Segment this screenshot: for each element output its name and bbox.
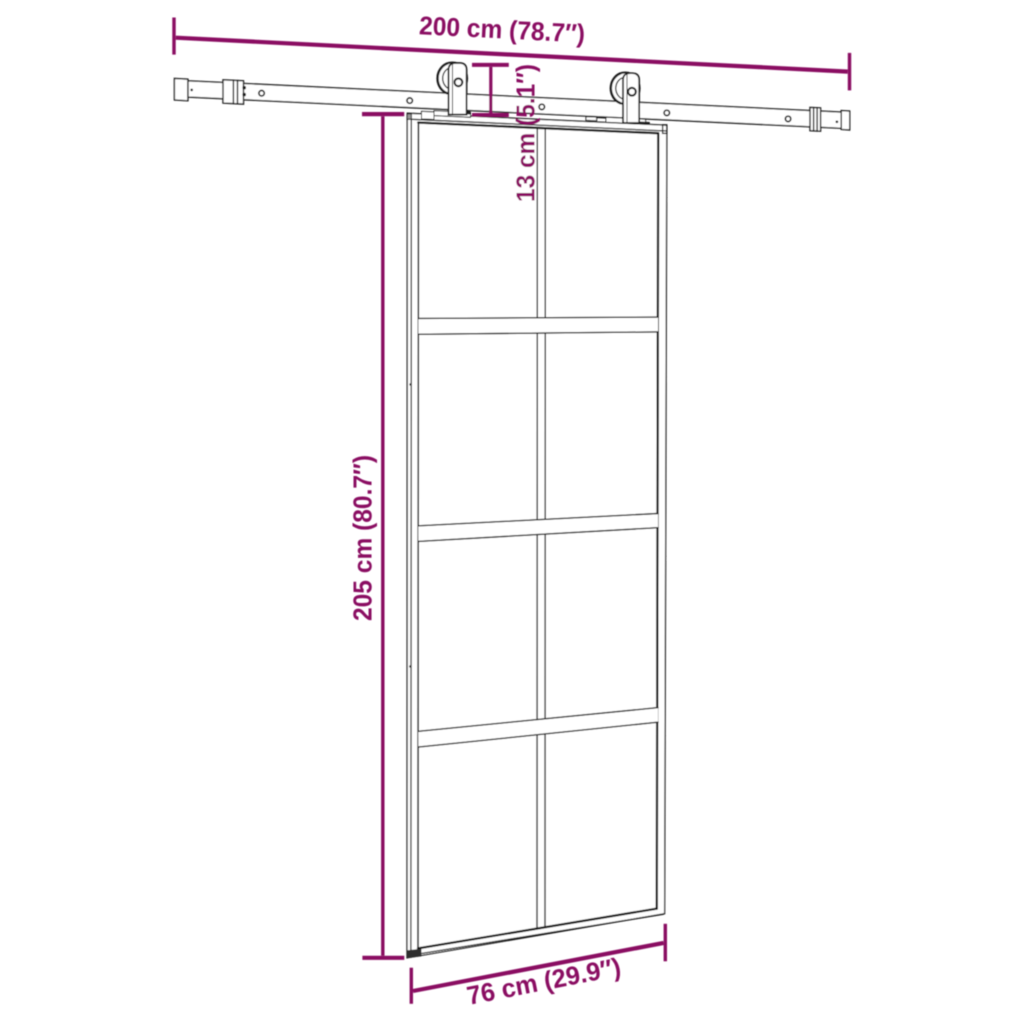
svg-text:13 cm (5.1″): 13 cm (5.1″) <box>511 64 541 202</box>
svg-text:205 cm (80.7″): 205 cm (80.7″) <box>348 455 378 621</box>
